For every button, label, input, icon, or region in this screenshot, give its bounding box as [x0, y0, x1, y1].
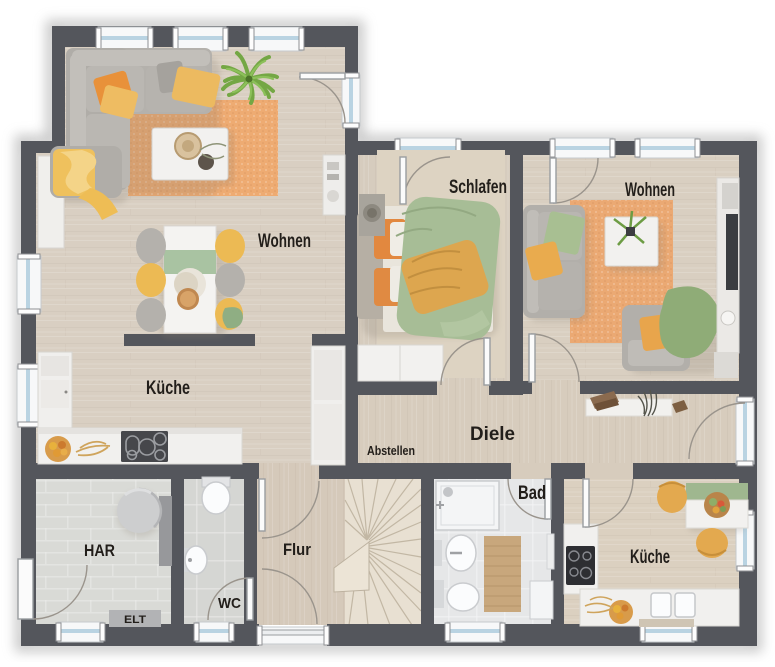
svg-text:Diele: Diele: [470, 424, 515, 445]
svg-text:Wohnen: Wohnen: [258, 231, 311, 252]
svg-text:Wohnen: Wohnen: [625, 180, 675, 201]
svg-text:Schlafen: Schlafen: [449, 177, 507, 198]
svg-text:Küche: Küche: [146, 378, 190, 399]
svg-text:Flur: Flur: [283, 540, 311, 559]
svg-text:Küche: Küche: [630, 547, 670, 568]
svg-text:ELT: ELT: [124, 614, 146, 626]
svg-text:HAR: HAR: [84, 541, 115, 560]
svg-text:WC: WC: [218, 595, 241, 612]
svg-text:Bad: Bad: [518, 483, 546, 504]
svg-text:Abstellen: Abstellen: [367, 443, 415, 458]
